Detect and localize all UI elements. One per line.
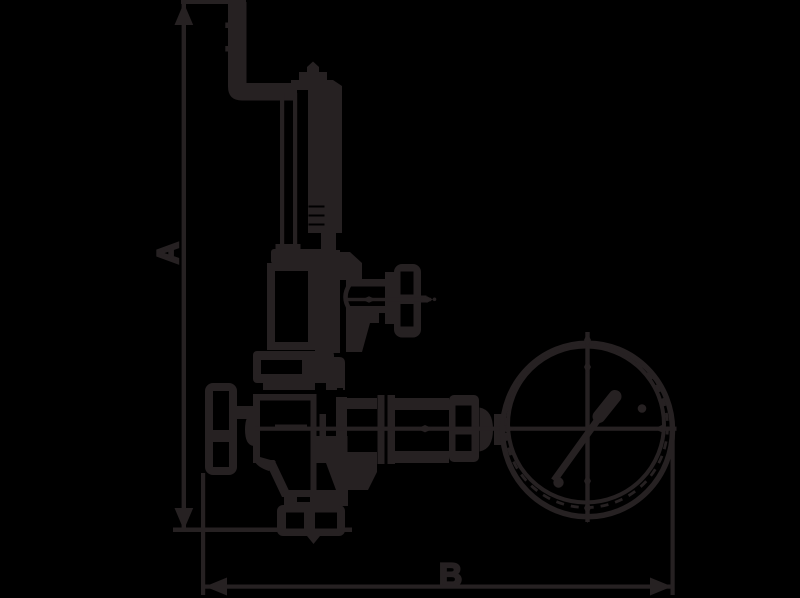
svg-text:B: B [439,557,462,593]
svg-text:A: A [152,242,185,264]
